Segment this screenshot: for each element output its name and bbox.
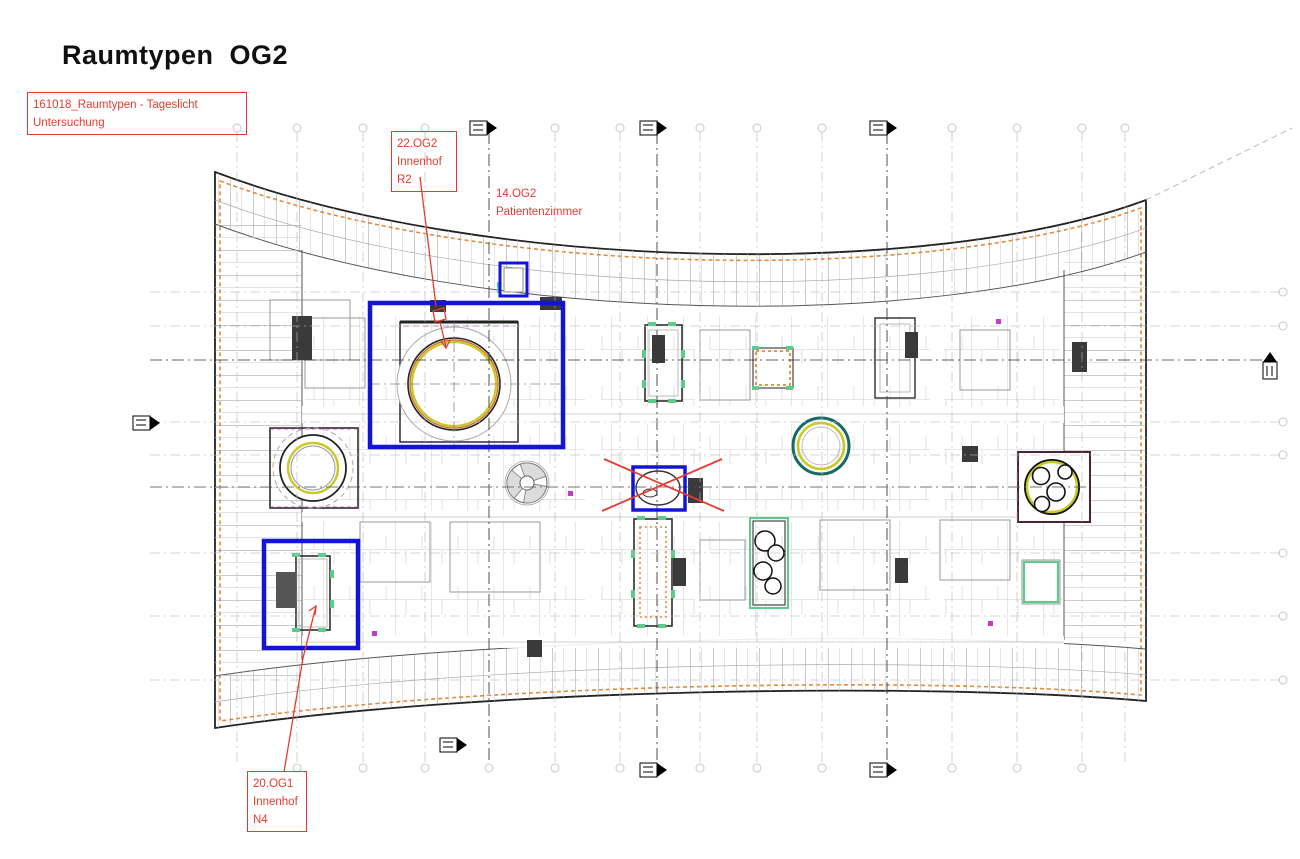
spiral-stair bbox=[505, 461, 549, 505]
site-boundary-line bbox=[1146, 128, 1292, 200]
oval-room bbox=[633, 467, 685, 510]
legend-note-box: 161018_Raumtypen - Tageslicht Untersuchu… bbox=[27, 92, 247, 135]
courtyard-orange-square bbox=[752, 346, 793, 390]
building-plan bbox=[215, 128, 1292, 728]
label-innenhof-n4: 20.OG1 Innenhof N4 bbox=[247, 771, 307, 832]
section-marker-icon bbox=[133, 416, 160, 430]
label-patientenzimmer-text: 14.OG2 Patientenzimmer bbox=[496, 188, 582, 218]
section-marker-icon bbox=[870, 121, 897, 135]
section-marker-icon bbox=[470, 121, 497, 135]
courtyard-small-green-right bbox=[1022, 560, 1060, 604]
section-marker-icon bbox=[640, 763, 667, 777]
right-room-band bbox=[1064, 252, 1146, 649]
legend-note-text: 161018_Raumtypen - Tageslicht Untersuchu… bbox=[33, 99, 198, 129]
label-innenhof-r2-text: 22.OG2 Innenhof R2 bbox=[397, 138, 442, 186]
section-marker-icon bbox=[640, 121, 667, 135]
page-title: Raumtypen OG2 bbox=[62, 40, 288, 71]
floor-plan-page: Raumtypen OG2 161018_Raumtypen - Tagesli… bbox=[0, 0, 1300, 859]
label-patientenzimmer: 14.OG2 Patientenzimmer bbox=[496, 184, 582, 220]
patient-room bbox=[504, 268, 523, 292]
label-innenhof-r2: 22.OG2 Innenhof R2 bbox=[391, 131, 457, 192]
label-innenhof-n4-text: 20.OG1 Innenhof N4 bbox=[253, 778, 298, 826]
section-marker-icon bbox=[1263, 352, 1277, 379]
section-marker-icon bbox=[870, 763, 897, 777]
section-marker-icon bbox=[440, 738, 467, 752]
